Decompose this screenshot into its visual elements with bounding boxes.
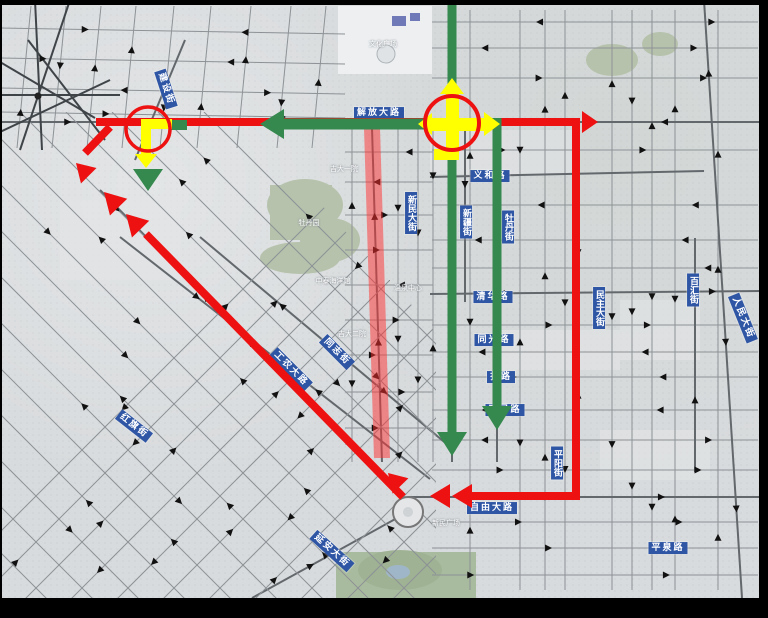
- route-overlay: [0, 0, 768, 618]
- frame-border-top: [0, 0, 768, 5]
- screenshot-frame: 文化广场吉大一院牡丹园中泰海洋馆温泉中心吉大二院新民广场 解放大路建设街义和路新…: [0, 0, 768, 618]
- frame-border-left: [0, 0, 2, 618]
- green-through-route: [133, 0, 512, 456]
- traffic-route-map: 文化广场吉大一院牡丹园中泰海洋馆温泉中心吉大二院新民广场 解放大路建设街义和路新…: [0, 0, 768, 618]
- traffic-signal-west: [126, 107, 172, 168]
- traffic-signal-center: [418, 78, 500, 160]
- closed-road-highlight: [364, 128, 390, 458]
- frame-border-bottom: [0, 598, 768, 618]
- frame-border-right: [759, 0, 768, 618]
